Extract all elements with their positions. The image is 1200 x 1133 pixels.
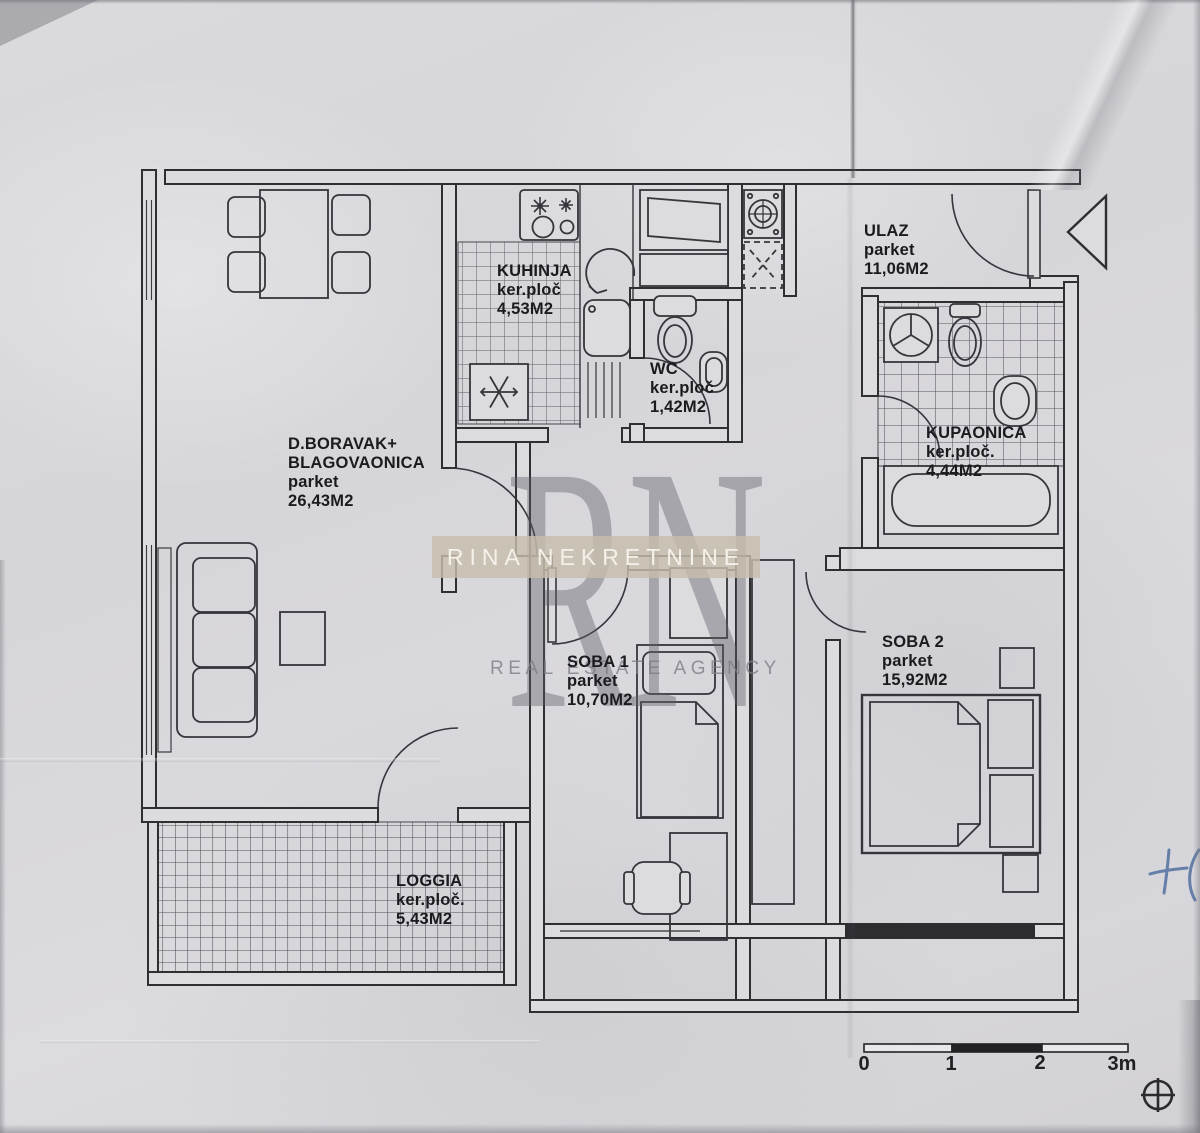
dining-table xyxy=(260,190,328,298)
desk-chair xyxy=(632,862,682,914)
window-band-room2 xyxy=(845,924,1035,938)
window-sill xyxy=(158,548,171,752)
blanket-folds xyxy=(958,702,980,846)
watermark-agency-name: RINA NEKRETNINE xyxy=(447,544,745,571)
wall-kitchen-left xyxy=(442,184,456,468)
handwritten-plus-mark xyxy=(1150,850,1199,900)
wall-room2-left-b xyxy=(826,640,840,1008)
crosshair-icon xyxy=(1141,1078,1175,1112)
wall-loggia-right xyxy=(504,822,516,985)
sofa-cushion xyxy=(193,558,255,612)
wall-bathroom-left-a xyxy=(862,296,878,396)
wall-bathroom-bottom xyxy=(840,548,1064,570)
scale-tick-3m: 3m xyxy=(1108,1053,1137,1076)
door-leaf-entry xyxy=(1028,190,1040,278)
hall-fixtures xyxy=(640,190,782,288)
sofa-cushion xyxy=(193,668,255,722)
wall-living-loggia-a xyxy=(142,808,378,822)
toilet-tank xyxy=(950,304,980,317)
side-table xyxy=(1003,855,1038,892)
door-swing-loggia xyxy=(378,728,458,808)
scale-tick-0: 0 xyxy=(858,1053,869,1076)
room-label-room1: SOBA 1 parket 10,70M2 xyxy=(567,653,633,710)
chair-armrest xyxy=(680,872,690,904)
bed-frame xyxy=(862,695,1040,853)
room-label-living: D.BORAVAK+ BLAGOVAONICA parket 26,43M2 xyxy=(288,435,425,512)
room-label-bathroom: KUPAONICA ker.ploč. 4,44M2 xyxy=(926,424,1027,481)
floor-plan-scan: RN RINA NEKRETNINE REAL ESTATE AGENCY D.… xyxy=(0,0,1200,1133)
handwritten-paren-mark xyxy=(1190,850,1199,900)
room-label-wc: WC ker.ploč 1,42M2 xyxy=(650,360,714,417)
room-label-kitchen: KUHINJA ker.ploč 4,53M2 xyxy=(497,262,572,319)
sofa xyxy=(177,543,257,737)
wall-right xyxy=(1064,282,1078,1008)
wall-bathroom-top xyxy=(862,288,1064,302)
coffee-table xyxy=(280,612,325,665)
wall-left xyxy=(142,170,156,822)
wall-bottom-outer xyxy=(530,1000,1078,1012)
door-swing-entry xyxy=(952,194,1034,276)
rotation-arrow-icon xyxy=(586,249,634,293)
scale-tick-1: 1 xyxy=(945,1053,956,1076)
room-label-loggia: LOGGIA ker.ploč. 5,43M2 xyxy=(396,872,465,929)
sofa-cushion xyxy=(193,613,255,667)
wall-top xyxy=(165,170,1080,184)
nightstand xyxy=(990,775,1033,847)
entrance-arrow-icon xyxy=(1068,196,1106,268)
nightstand xyxy=(988,700,1033,768)
shelf xyxy=(640,254,728,286)
wall-living-loggia-b xyxy=(458,808,530,822)
toilet-tank xyxy=(654,296,696,316)
scale-tick-2: 2 xyxy=(1034,1052,1045,1075)
x-cross-icon xyxy=(744,242,782,288)
wall-room2-left-a xyxy=(826,556,840,570)
chair-armrest xyxy=(624,872,634,904)
chair xyxy=(332,252,370,293)
wall-loggia-bottom xyxy=(148,972,516,985)
room-label-room2: SOBA 2 parket 15,92M2 xyxy=(882,633,948,690)
watermark-band: RINA NEKRETNINE xyxy=(432,536,760,578)
wall-bathroom-left-b xyxy=(862,458,878,548)
chair xyxy=(332,195,370,235)
scale-bar xyxy=(864,1044,1128,1052)
kitchen-sink xyxy=(584,300,630,356)
room-label-entry: ULAZ parket 11,06M2 xyxy=(864,222,929,279)
door-swing-room2 xyxy=(806,572,866,632)
wall-loggia-left xyxy=(148,822,158,985)
cabinet xyxy=(1000,648,1034,688)
wall-niche-right xyxy=(784,184,796,296)
